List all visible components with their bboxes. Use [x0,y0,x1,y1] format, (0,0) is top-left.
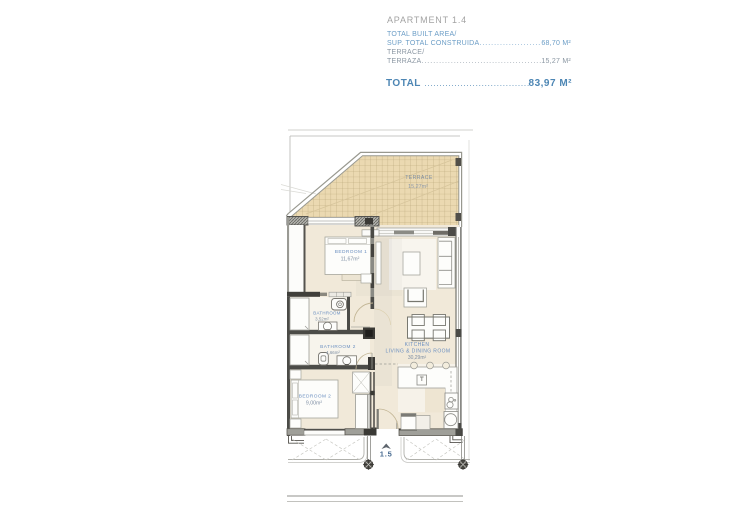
svg-text:BEDROOM 2: BEDROOM 2 [299,394,331,400]
svg-text:TERRACE: TERRACE [405,175,433,181]
svg-text:4,66m²: 4,66m² [326,350,340,355]
svg-text:3,52m²: 3,52m² [315,317,329,322]
svg-text:KITCHEN: KITCHEN [405,342,430,348]
svg-text:BATHROOM: BATHROOM [313,311,340,316]
svg-text:BATHROOM 2: BATHROOM 2 [320,344,356,349]
svg-text:30,29m²: 30,29m² [408,355,427,361]
svg-text:9,00m²: 9,00m² [306,401,322,407]
svg-text:BEDROOM 1: BEDROOM 1 [335,249,367,255]
svg-text:LIVING & DINING ROOM: LIVING & DINING ROOM [386,349,451,355]
svg-text:1.5: 1.5 [380,450,393,459]
svg-text:15,27m²: 15,27m² [408,184,428,190]
svg-text:11,67m²: 11,67m² [341,257,360,263]
